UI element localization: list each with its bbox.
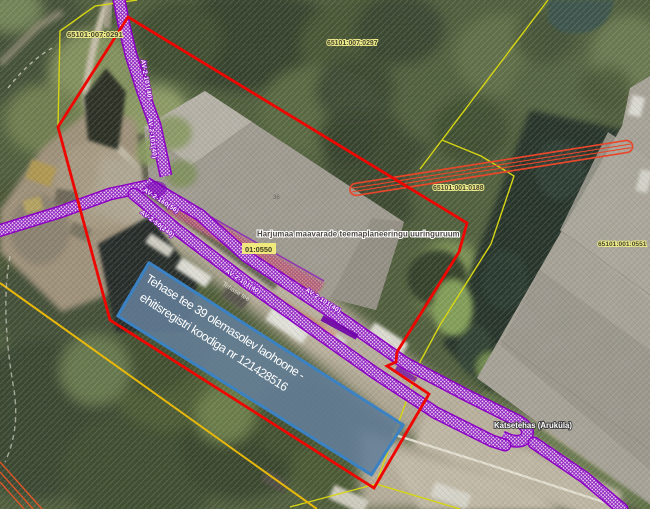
svg-text:Harjumaa maavarade teemaplanee: Harjumaa maavarade teemaplaneeringu uuri… (257, 230, 460, 239)
svg-text:65101:007:0297: 65101:007:0297 (327, 40, 378, 47)
svg-text:65101:001:0188: 65101:001:0188 (433, 185, 484, 192)
svg-text:36: 36 (273, 195, 280, 201)
svg-text:65101:007:0291: 65101:007:0291 (67, 30, 124, 39)
svg-text:Katsetehas (Aruküla): Katsetehas (Aruküla) (494, 421, 572, 430)
svg-text:65101:001:0551: 65101:001:0551 (598, 241, 647, 248)
svg-text:01:0550: 01:0550 (245, 245, 272, 254)
